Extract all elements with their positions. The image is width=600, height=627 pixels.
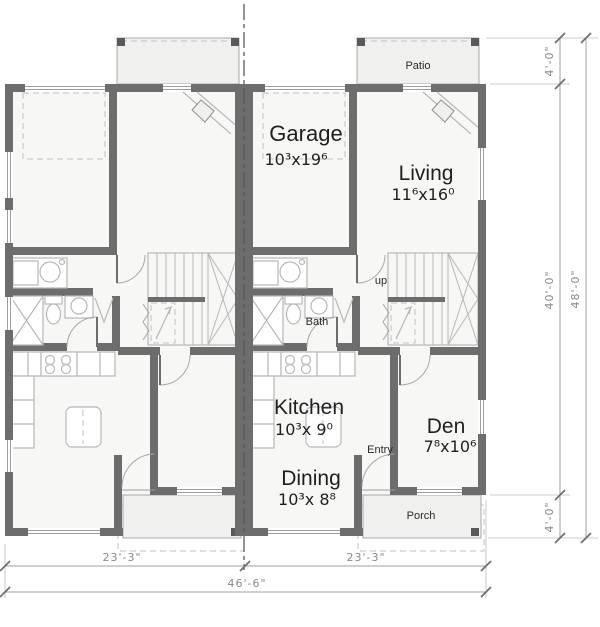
living-label: Living	[399, 162, 454, 185]
up-label: up	[375, 275, 387, 287]
bath-label: Bath	[306, 316, 329, 328]
living-size: 11⁶x16⁰	[391, 185, 454, 204]
dim-right-unit-width: 23'-3"	[346, 551, 385, 564]
kitchen-label: Kitchen	[274, 396, 344, 419]
den-label: Den	[427, 415, 466, 438]
kitchen-size: 10³x 9⁰	[275, 420, 333, 439]
garage-label: Garage	[269, 121, 342, 146]
floor-plan-drawing: Garage 10³x19⁶ Living 11⁶x16⁰ Kitchen 10…	[0, 0, 600, 627]
den-size: 7⁸x10⁶	[424, 437, 477, 456]
dim-porch-depth: 4'-0"	[543, 501, 556, 532]
dim-main-depth: 40'-0"	[543, 270, 556, 309]
dim-total-depth: 48'-0"	[569, 269, 582, 308]
patio-label: Patio	[405, 60, 430, 72]
garage-size: 10³x19⁶	[264, 150, 327, 169]
dim-left-unit-width: 23'-3"	[102, 551, 141, 564]
left-unit	[5, 38, 244, 551]
porch-label: Porch	[407, 510, 436, 522]
dim-total-width: 46'-6"	[227, 577, 266, 590]
dining-size: 10³x 8⁸	[278, 490, 336, 509]
dim-patio-depth: 4'-0"	[543, 45, 556, 76]
floor-plan-page: Garage 10³x19⁶ Living 11⁶x16⁰ Kitchen 10…	[0, 0, 600, 627]
entry-label: Entry	[367, 444, 393, 456]
dining-label: Dining	[281, 467, 341, 490]
